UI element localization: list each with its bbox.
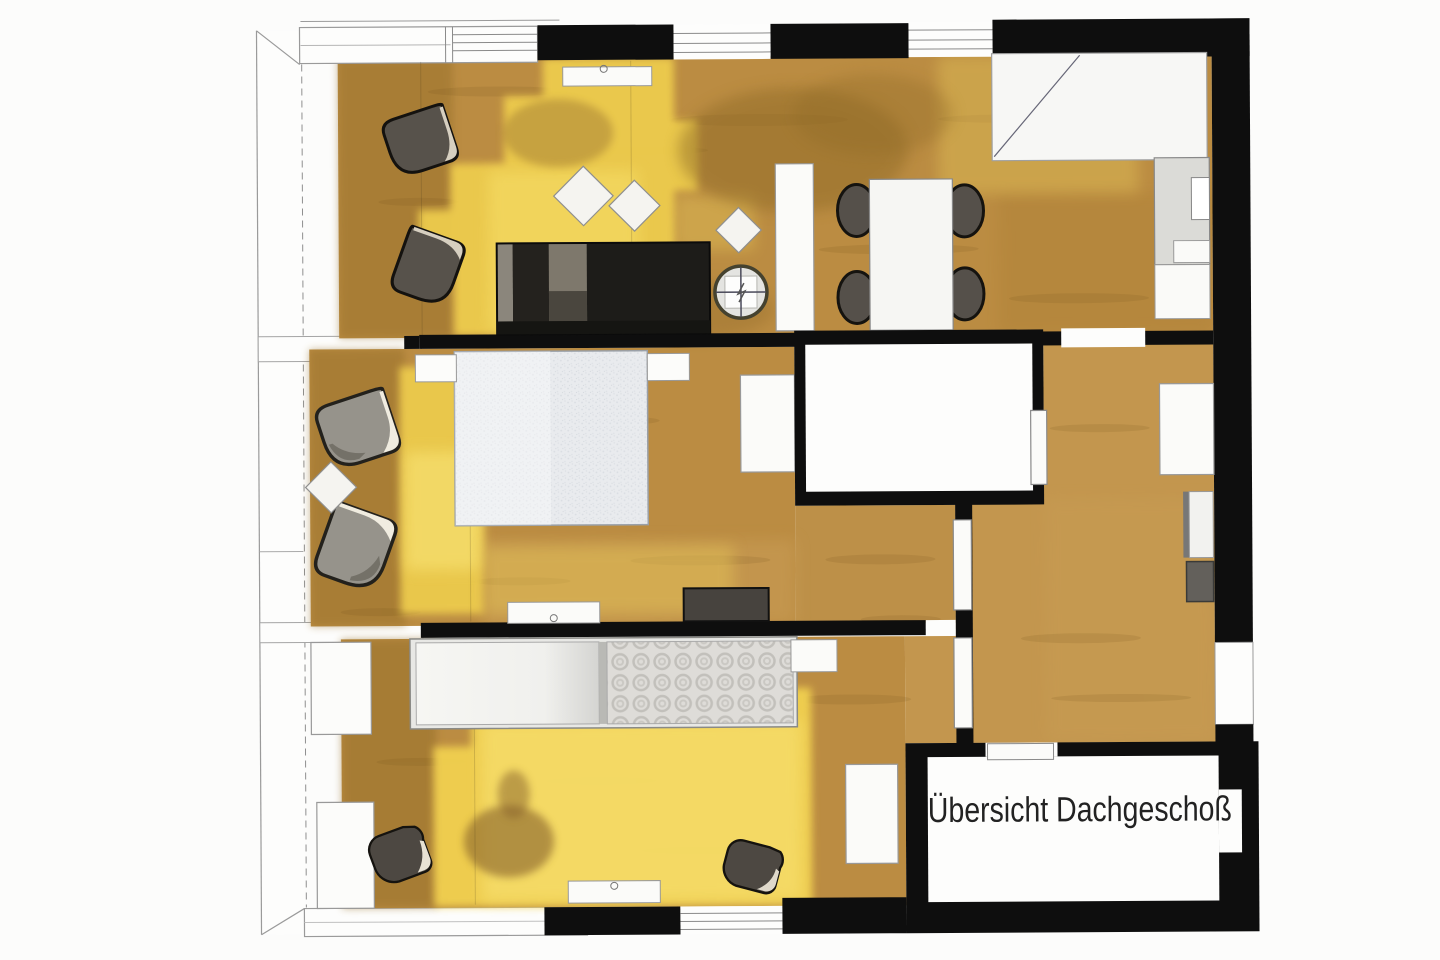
svg-text:Übersicht Dachgeschoß: Übersicht Dachgeschoß <box>928 789 1232 830</box>
